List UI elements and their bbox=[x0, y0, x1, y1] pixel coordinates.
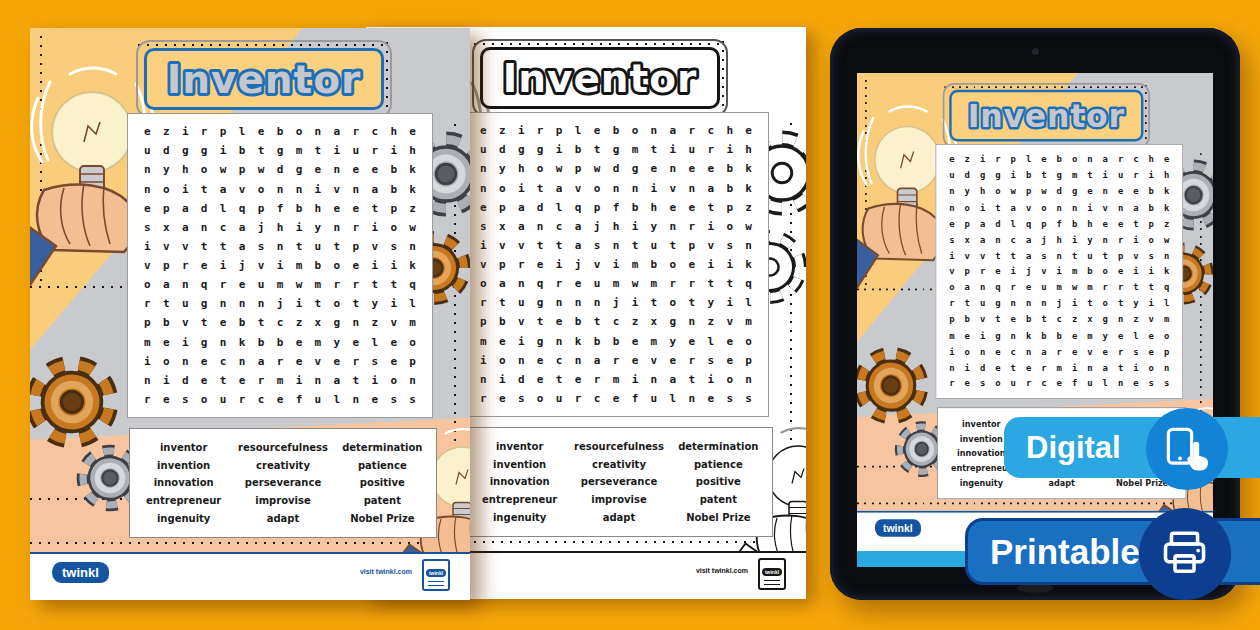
grid-letter: c bbox=[277, 317, 284, 328]
grid-letter: l bbox=[371, 337, 378, 348]
grid-letter: b bbox=[726, 163, 733, 174]
grid-letter: o bbox=[1103, 267, 1108, 276]
word-item: positive bbox=[669, 476, 768, 487]
grid-letter: l bbox=[220, 203, 227, 214]
word-item: ingenuity bbox=[134, 513, 233, 524]
grid-letter: i bbox=[315, 184, 322, 195]
grid-letter: e bbox=[745, 125, 752, 136]
grid-letter: b bbox=[390, 184, 397, 195]
grid-letter: s bbox=[390, 241, 397, 252]
word-item: innovation bbox=[470, 476, 569, 487]
grid-letter: t bbox=[1133, 283, 1138, 292]
grid-letter: i bbox=[1103, 171, 1108, 180]
grid-letter: o bbox=[1149, 363, 1154, 372]
grid-letter: b bbox=[1041, 331, 1046, 340]
grid-letter: v bbox=[707, 240, 714, 251]
grid-letter: i bbox=[1011, 171, 1016, 180]
grid-letter: g bbox=[980, 171, 985, 180]
grid-letter: c bbox=[1011, 347, 1016, 356]
grid-letter: b bbox=[1026, 315, 1031, 324]
grid-letter: n bbox=[688, 393, 695, 404]
grid-letter: o bbox=[1149, 235, 1154, 244]
grid-letter: r bbox=[1118, 347, 1123, 356]
grid-letter: o bbox=[670, 297, 677, 308]
grid-letter: b bbox=[632, 202, 639, 213]
grid-letter: e bbox=[277, 394, 284, 405]
grid-letter: e bbox=[296, 356, 303, 367]
grid-letter: u bbox=[518, 297, 525, 308]
grid-letter: t bbox=[1072, 251, 1077, 260]
grid-letter: m bbox=[632, 259, 639, 270]
grid-letter: v bbox=[651, 355, 658, 366]
grid-letter: i bbox=[296, 375, 303, 386]
color-page-preview: Inventor ezirplebonarcheudggibtgmtiurihn… bbox=[30, 28, 470, 600]
grid-letter: e bbox=[258, 126, 265, 137]
grid-letter: o bbox=[726, 221, 733, 232]
grid-row: resourcefulness bbox=[480, 393, 752, 404]
grid-letter: n bbox=[480, 374, 487, 385]
grid-letter: r bbox=[371, 145, 378, 156]
worksheet-page: Inventor ezirplebonarcheudggibtgmtiurihn… bbox=[30, 28, 470, 600]
grid-letter: o bbox=[296, 126, 303, 137]
grid-letter: x bbox=[163, 222, 170, 233]
grid-letter: h bbox=[277, 222, 284, 233]
grid-letter: e bbox=[1087, 187, 1092, 196]
grid-letter: y bbox=[707, 297, 714, 308]
grid-letter: i bbox=[480, 355, 487, 366]
grid-letter: k bbox=[409, 184, 416, 195]
grid-letter: i bbox=[1072, 235, 1077, 244]
grid-letter: a bbox=[182, 222, 189, 233]
word-item: adapt bbox=[233, 513, 332, 524]
grid-letter: i bbox=[182, 337, 189, 348]
grid-letter: e bbox=[726, 336, 733, 347]
grid-letter: n bbox=[315, 126, 322, 137]
grid-row: ivvttasntutpvsn bbox=[144, 241, 416, 252]
grid-letter: i bbox=[651, 183, 658, 194]
grid-letter: d bbox=[1057, 187, 1062, 196]
grid-letter: o bbox=[965, 347, 970, 356]
grid-letter: l bbox=[575, 125, 582, 136]
grid-letter: i bbox=[518, 336, 525, 347]
grid-letter: o bbox=[480, 278, 487, 289]
grid-letter: i bbox=[726, 144, 733, 155]
grid-letter: n bbox=[556, 336, 563, 347]
grid-letter: i bbox=[949, 251, 954, 260]
grid-letter: e bbox=[1118, 331, 1123, 340]
grid-letter: o bbox=[995, 379, 1000, 388]
grid-letter: b bbox=[651, 259, 658, 270]
visit-link[interactable]: visit twinkl.com bbox=[696, 567, 748, 574]
grid-letter: k bbox=[1164, 187, 1169, 196]
grid-letter: l bbox=[1133, 331, 1138, 340]
grid-row: ezirplebonarche bbox=[949, 155, 1169, 164]
grid-letter: z bbox=[409, 203, 416, 214]
grid-letter: a bbox=[258, 356, 265, 367]
word-item: improvise bbox=[569, 494, 668, 505]
grid-letter: n bbox=[352, 394, 359, 405]
grid-letter: n bbox=[144, 184, 151, 195]
twinkl-stamp: twinkl bbox=[422, 559, 450, 591]
grid-letter: p bbox=[688, 240, 695, 251]
grid-letter: e bbox=[965, 331, 970, 340]
grid-letter: r bbox=[1057, 347, 1062, 356]
grid-letter: e bbox=[163, 394, 170, 405]
grid-letter: g bbox=[537, 336, 544, 347]
grid-letter: m bbox=[296, 145, 303, 156]
grid-letter: n bbox=[1164, 363, 1169, 372]
word-item: innovation bbox=[134, 477, 233, 488]
grid-letter: t bbox=[258, 317, 265, 328]
grid-letter: n bbox=[1164, 251, 1169, 260]
visit-link[interactable]: visit twinkl.com bbox=[360, 568, 412, 575]
grid-letter: b bbox=[575, 316, 582, 327]
grid-letter: b bbox=[1057, 155, 1062, 164]
grid-letter: b bbox=[1072, 219, 1077, 228]
grid-letter: h bbox=[315, 203, 322, 214]
grid-letter: i bbox=[707, 259, 714, 270]
grid-letter: l bbox=[334, 394, 341, 405]
grid-letter: e bbox=[390, 337, 397, 348]
grid-letter: h bbox=[518, 163, 525, 174]
grid-letter: c bbox=[1041, 379, 1046, 388]
printer-icon[interactable] bbox=[1139, 508, 1231, 600]
grid-letter: t bbox=[296, 241, 303, 252]
grid-letter: w bbox=[258, 164, 265, 175]
grid-letter: e bbox=[1149, 331, 1154, 340]
tablet-touch-icon[interactable] bbox=[1146, 408, 1228, 490]
grid-letter: f bbox=[1072, 379, 1077, 388]
grid-letter: l bbox=[1026, 155, 1031, 164]
grid-letter: v bbox=[182, 317, 189, 328]
grid-letter: r bbox=[480, 393, 487, 404]
grid-letter: l bbox=[1011, 219, 1016, 228]
grid-letter: i bbox=[518, 125, 525, 136]
grid-letter: o bbox=[499, 183, 506, 194]
grid-letter: v bbox=[480, 259, 487, 270]
grid-letter: v bbox=[980, 251, 985, 260]
grid-letter: e bbox=[315, 164, 322, 175]
grid-letter: u bbox=[1041, 283, 1046, 292]
grid-letter: z bbox=[371, 317, 378, 328]
grid-letter: o bbox=[201, 164, 208, 175]
grid-letter: m bbox=[315, 279, 322, 290]
grid-letter: i bbox=[144, 241, 151, 252]
grid-letter: a bbox=[575, 221, 582, 232]
grid-letter: g bbox=[995, 331, 1000, 340]
grid-letter: i bbox=[163, 375, 170, 386]
grid-letter: n bbox=[480, 183, 487, 194]
grid-letter: e bbox=[1133, 187, 1138, 196]
grid-letter: n bbox=[745, 240, 752, 251]
grid-letter: y bbox=[163, 164, 170, 175]
word-item: invention bbox=[134, 460, 233, 471]
grid-row: ezirplebonarche bbox=[480, 125, 752, 136]
grid-letter: v bbox=[182, 241, 189, 252]
grid-letter: t bbox=[594, 316, 601, 327]
grid-letter: g bbox=[632, 163, 639, 174]
grid-letter: a bbox=[334, 126, 341, 137]
grid-letter: p bbox=[239, 164, 246, 175]
grid-letter: n bbox=[518, 355, 525, 366]
grid-letter: g bbox=[613, 144, 620, 155]
grid-letter: c bbox=[613, 316, 620, 327]
grid-letter: t bbox=[201, 184, 208, 195]
grid-letter: b bbox=[315, 260, 322, 271]
grid-letter: e bbox=[1149, 347, 1154, 356]
grid-letter: t bbox=[1011, 363, 1016, 372]
grid-letter: t bbox=[352, 375, 359, 386]
grid-letter: n bbox=[201, 222, 208, 233]
grid-row: pbvtebtczxgnzvm bbox=[144, 317, 416, 328]
word-item: improvise bbox=[233, 495, 332, 506]
grid-row: ivvttasntutpvsn bbox=[480, 240, 752, 251]
grid-letter: y bbox=[1133, 299, 1138, 308]
grid-letter: v bbox=[1133, 251, 1138, 260]
grid-letter: u bbox=[315, 394, 322, 405]
grid-letter: y bbox=[651, 221, 658, 232]
grid-letter: w bbox=[1164, 235, 1169, 244]
grid-letter: m bbox=[1087, 331, 1092, 340]
grid-letter: j bbox=[575, 259, 582, 270]
grid-letter: a bbox=[518, 221, 525, 232]
grid-letter: s bbox=[594, 240, 601, 251]
grid-letter: c bbox=[220, 222, 227, 233]
grid-letter: t bbox=[537, 183, 544, 194]
grid-letter: r bbox=[670, 278, 677, 289]
grid-letter: s bbox=[144, 222, 151, 233]
grid-letter: e bbox=[1118, 219, 1123, 228]
grid-letter: n bbox=[1103, 235, 1108, 244]
grid-letter: m bbox=[1087, 283, 1092, 292]
grid-letter: o bbox=[144, 279, 151, 290]
grid-letter: e bbox=[688, 336, 695, 347]
grid-letter: n bbox=[144, 164, 151, 175]
grid-letter: n bbox=[1041, 299, 1046, 308]
grid-letter: k bbox=[745, 259, 752, 270]
grid-letter: h bbox=[726, 125, 733, 136]
grid-letter: m bbox=[1057, 283, 1062, 292]
grid-letter: o bbox=[594, 183, 601, 194]
grid-letter: b bbox=[1057, 331, 1062, 340]
grid-letter: t bbox=[707, 278, 714, 289]
grid-letter: e bbox=[949, 155, 954, 164]
grid-letter: q bbox=[745, 278, 752, 289]
grid-row: resourcefulness bbox=[949, 379, 1169, 388]
grid-letter: p bbox=[594, 202, 601, 213]
grid-letter: k bbox=[409, 164, 416, 175]
grid-letter: e bbox=[352, 260, 359, 271]
grid-letter: n bbox=[949, 203, 954, 212]
title-frame: Inventor bbox=[943, 83, 1150, 148]
grid-letter: e bbox=[334, 203, 341, 214]
grid-letter: p bbox=[965, 267, 970, 276]
grid-letter: d bbox=[182, 375, 189, 386]
grid-letter: q bbox=[537, 278, 544, 289]
grid-letter: b bbox=[239, 145, 246, 156]
grid-letter: u bbox=[949, 171, 954, 180]
grid-letter: n bbox=[1057, 203, 1062, 212]
grid-letter: m bbox=[409, 317, 416, 328]
grid-letter: l bbox=[707, 336, 714, 347]
grid-letter: n bbox=[575, 355, 582, 366]
grid-letter: s bbox=[726, 240, 733, 251]
grid-letter: t bbox=[315, 298, 322, 309]
grid-letter: e bbox=[632, 336, 639, 347]
grid-letter: q bbox=[995, 283, 1000, 292]
grid-letter: s bbox=[518, 393, 525, 404]
grid-letter: p bbox=[745, 355, 752, 366]
grid-letter: c bbox=[556, 221, 563, 232]
grid-letter: i bbox=[371, 222, 378, 233]
grid-row: vpreijvimboeiik bbox=[949, 267, 1169, 276]
grid-letter: z bbox=[1164, 219, 1169, 228]
grid-letter: s bbox=[1133, 347, 1138, 356]
grid-letter: n bbox=[352, 317, 359, 328]
grid-letter: i bbox=[1149, 299, 1154, 308]
grid-letter: a bbox=[1026, 251, 1031, 260]
grid-letter: l bbox=[556, 202, 563, 213]
grid-letter: l bbox=[1164, 299, 1169, 308]
grid-letter: i bbox=[371, 260, 378, 271]
word-item: perseverance bbox=[233, 477, 332, 488]
grid-letter: n bbox=[632, 183, 639, 194]
grid-letter: r bbox=[613, 355, 620, 366]
grid-letter: a bbox=[518, 202, 525, 213]
grid-letter: l bbox=[1103, 379, 1108, 388]
grid-row: oanqreumwmrrttq bbox=[144, 279, 416, 290]
grid-letter: t bbox=[1133, 219, 1138, 228]
grid-letter: e bbox=[1133, 379, 1138, 388]
word-list-column: determinationpatiencepositivepatentNobel… bbox=[333, 435, 432, 531]
grid-letter: n bbox=[613, 183, 620, 194]
grid-letter: p bbox=[1011, 155, 1016, 164]
grid-row: rtugnnnjitotyil bbox=[949, 299, 1169, 308]
grid-letter: i bbox=[726, 297, 733, 308]
grid-letter: n bbox=[949, 363, 954, 372]
grid-letter: o bbox=[949, 283, 954, 292]
twinkl-logo: twinkl bbox=[52, 562, 109, 583]
grid-row: pbvtebtczxgnzvm bbox=[949, 315, 1169, 324]
grid-letter: r bbox=[575, 393, 582, 404]
grid-letter: d bbox=[201, 203, 208, 214]
grid-letter: h bbox=[613, 221, 620, 232]
grid-letter: n bbox=[1087, 363, 1092, 372]
grid-letter: n bbox=[613, 240, 620, 251]
grid-letter: a bbox=[1041, 347, 1046, 356]
grid-letter: e bbox=[239, 375, 246, 386]
word-item: creativity bbox=[569, 459, 668, 470]
grid-letter: l bbox=[409, 298, 416, 309]
grid-letter: o bbox=[726, 374, 733, 385]
grid-letter: e bbox=[613, 393, 620, 404]
grid-letter: m bbox=[277, 279, 284, 290]
grid-letter: b bbox=[163, 317, 170, 328]
grid-letter: e bbox=[1057, 379, 1062, 388]
grid-letter: h bbox=[409, 145, 416, 156]
grid-letter: n bbox=[1087, 155, 1092, 164]
grid-letter: m bbox=[1072, 267, 1077, 276]
grid-letter: m bbox=[651, 336, 658, 347]
grid-letter: z bbox=[745, 202, 752, 213]
grid-letter: r bbox=[688, 125, 695, 136]
word-search-grid: ezirplebonarcheudggibtgmtiurihnyhowpwdge… bbox=[935, 144, 1183, 399]
grid-letter: j bbox=[277, 298, 284, 309]
grid-letter: n bbox=[1026, 347, 1031, 356]
grid-letter: n bbox=[518, 278, 525, 289]
grid-letter: f bbox=[632, 393, 639, 404]
grid-letter: d bbox=[613, 163, 620, 174]
grid-letter: e bbox=[499, 393, 506, 404]
grid-letter: k bbox=[409, 260, 416, 271]
worksheet-title: Inventor bbox=[968, 97, 1125, 136]
grid-letter: r bbox=[949, 299, 954, 308]
grid-letter: v bbox=[371, 241, 378, 252]
grid-letter: n bbox=[220, 298, 227, 309]
grid-letter: n bbox=[556, 297, 563, 308]
grid-letter: n bbox=[220, 337, 227, 348]
grid-letter: t bbox=[371, 203, 378, 214]
grid-letter: d bbox=[965, 171, 970, 180]
grid-letter: n bbox=[182, 356, 189, 367]
grid-letter: i bbox=[1072, 299, 1077, 308]
grid-letter: r bbox=[144, 298, 151, 309]
grid-letter: u bbox=[1087, 251, 1092, 260]
word-search-grid: ezirplebonarcheudggibtgmtiurihnyhowpwdge… bbox=[127, 113, 433, 418]
grid-letter: r bbox=[352, 126, 359, 137]
word-item: resourcefulness bbox=[569, 441, 668, 452]
grid-letter: g bbox=[1057, 171, 1062, 180]
grid-letter: r bbox=[182, 260, 189, 271]
grid-row: udggibtgmtiurih bbox=[480, 144, 752, 155]
word-item: inventor bbox=[134, 442, 233, 453]
grid-letter: z bbox=[296, 317, 303, 328]
grid-letter: e bbox=[1164, 155, 1169, 164]
grid-letter: w bbox=[632, 278, 639, 289]
grid-letter: i bbox=[1072, 363, 1077, 372]
grid-letter: a bbox=[182, 203, 189, 214]
stamp-lines bbox=[428, 581, 444, 590]
grid-row: epadlqpfbheetpz bbox=[480, 202, 752, 213]
grid-letter: s bbox=[1149, 251, 1154, 260]
grid-letter: r bbox=[556, 278, 563, 289]
grid-letter: r bbox=[334, 279, 341, 290]
word-list-column: inventorinventioninnovationentrepreneuri… bbox=[134, 435, 233, 531]
grid-letter: i bbox=[1133, 267, 1138, 276]
grid-letter: w bbox=[409, 222, 416, 233]
grid-letter: t bbox=[390, 279, 397, 290]
grid-letter: s bbox=[949, 235, 954, 244]
grid-letter: n bbox=[1011, 299, 1016, 308]
grid-letter: v bbox=[1149, 315, 1154, 324]
grid-letter: p bbox=[220, 126, 227, 137]
grid-letter: i bbox=[390, 260, 397, 271]
grid-letter: e bbox=[480, 202, 487, 213]
grid-letter: i bbox=[296, 222, 303, 233]
grid-letter: p bbox=[556, 125, 563, 136]
grid-letter: r bbox=[518, 259, 525, 270]
grid-letter: v bbox=[239, 184, 246, 195]
grid-letter: n bbox=[1057, 251, 1062, 260]
grid-letter: y bbox=[965, 187, 970, 196]
grid-letter: v bbox=[1026, 203, 1031, 212]
grid-letter: m bbox=[315, 337, 322, 348]
grid-letter: g bbox=[995, 299, 1000, 308]
grid-letter: t bbox=[220, 375, 227, 386]
grid-letter: i bbox=[1133, 235, 1138, 244]
grid-letter: n bbox=[315, 375, 322, 386]
grid-letter: h bbox=[651, 202, 658, 213]
